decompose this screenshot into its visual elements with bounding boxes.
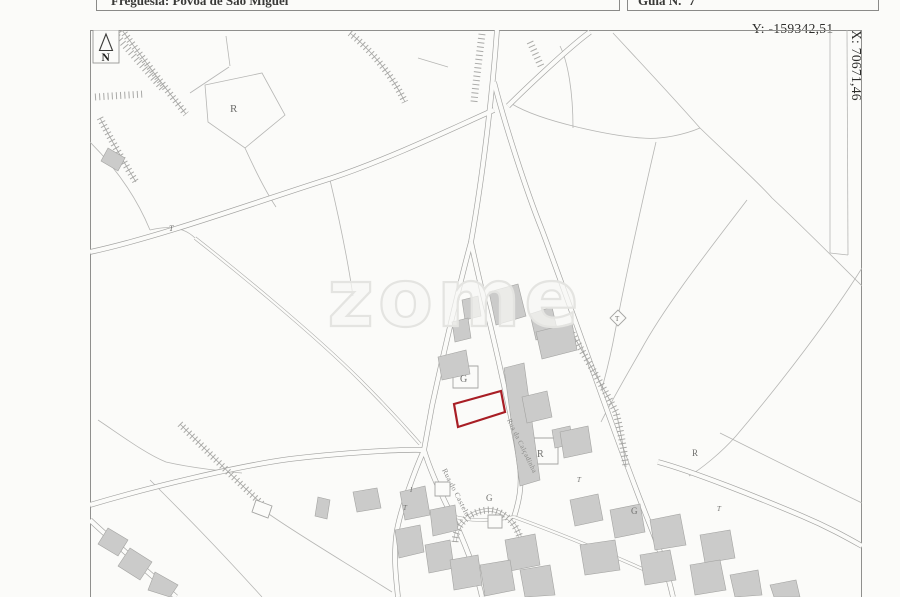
parcel-label: T [717, 505, 722, 513]
watermark-text: zome [327, 252, 582, 345]
buildings-layer [98, 148, 800, 597]
parcel-label: T [615, 315, 620, 323]
parcel-label: G [486, 493, 493, 503]
parish-header-box: Freguesia: Póvoa de São Miguel [96, 0, 620, 11]
scanned-cadastral-page: Freguesia: Póvoa de São Miguel Guia N.º … [0, 0, 900, 597]
cadastral-map: R G R G G R T T T T I T Rua do Castelo R… [90, 30, 862, 597]
guide-number-box: Guia N.º 7 [627, 0, 879, 11]
parcel-label: R [230, 103, 238, 115]
parcel-label: G [631, 506, 638, 516]
parcel-label: G [460, 374, 467, 385]
parcel-label: R [537, 449, 544, 460]
parcel-label: T [169, 224, 174, 233]
guide-number-text: Guia N.º 7 [638, 0, 695, 9]
north-letter: N [102, 52, 111, 64]
highlighted-parcel-outline[interactable] [454, 391, 505, 427]
parcel-label: R [692, 448, 698, 458]
north-arrow: N [93, 30, 119, 64]
parish-header-text: Freguesia: Póvoa de São Miguel [111, 0, 288, 9]
parcel-label: T [577, 476, 582, 484]
